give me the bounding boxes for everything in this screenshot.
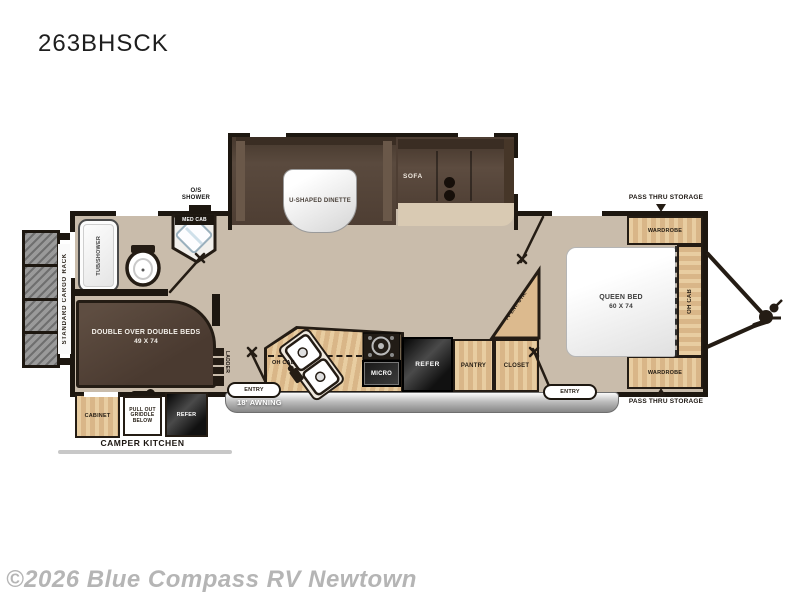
cargo-rack-mount bbox=[58, 358, 72, 365]
bedroom-oh-cab: OH CAB bbox=[677, 245, 703, 357]
ladder-label: LADDER bbox=[224, 351, 230, 373]
outside-shower-box bbox=[189, 205, 211, 212]
pantry-label: PANTRY bbox=[461, 363, 486, 369]
bathroom-wall bbox=[75, 289, 168, 296]
wardrobe-top-label: WARDROBE bbox=[648, 228, 682, 234]
window bbox=[70, 232, 75, 278]
microwave: MICRO bbox=[362, 360, 401, 387]
queen-bed-label: QUEEN BED bbox=[599, 294, 642, 301]
tub-shower-label: TUB/SHOWER bbox=[96, 236, 102, 276]
cargo-rack bbox=[22, 230, 60, 368]
closet: CLOSET bbox=[494, 339, 539, 392]
bed-head-divider bbox=[675, 246, 677, 356]
window bbox=[250, 133, 286, 137]
oh-cab-divider bbox=[268, 355, 362, 357]
window bbox=[514, 158, 518, 194]
sofa-seam bbox=[470, 151, 472, 201]
bunk-label: DOUBLE OVER DOUBLE BEDS bbox=[92, 329, 201, 336]
watermark: ©2026 Blue Compass RV Newtown bbox=[6, 566, 417, 594]
bedroom-oh-cab-label: OH CAB bbox=[687, 289, 693, 314]
bunk-beds: DOUBLE OVER DOUBLE BEDS 49 X 74 bbox=[76, 300, 216, 388]
entry-front-label: ENTRY bbox=[244, 387, 263, 393]
pantry: PANTRY bbox=[453, 339, 494, 392]
refrigerator: REFER bbox=[402, 337, 453, 392]
griddle-label: BELOW bbox=[133, 419, 153, 425]
refrigerator-label: REFER bbox=[415, 361, 440, 368]
window bbox=[552, 211, 602, 216]
entry-door-front: ENTRY bbox=[227, 382, 281, 398]
cargo-rack-cell bbox=[25, 233, 57, 264]
pass-thru-top-label: PASS THRU STORAGE bbox=[624, 194, 708, 201]
tub-shower: TUB/SHOWER bbox=[78, 219, 119, 292]
pass-thru-bottom-marker bbox=[656, 388, 666, 396]
dinette-back bbox=[236, 137, 396, 145]
hitch bbox=[707, 253, 781, 347]
dinette-label: U-SHAPED DINETTE bbox=[289, 198, 351, 204]
wardrobe-top: WARDROBE bbox=[627, 216, 703, 245]
sofa-cupholder bbox=[444, 190, 455, 201]
entry-rear-label: ENTRY bbox=[560, 389, 579, 395]
camper-refrigerator: REFER bbox=[165, 392, 208, 437]
ground-shadow bbox=[58, 450, 232, 454]
pull-out-griddle: PULL OUT GRIDDLE BELOW bbox=[123, 396, 162, 436]
sofa-label: SOFA bbox=[403, 173, 423, 180]
cargo-rack-cell bbox=[25, 334, 57, 365]
window bbox=[458, 133, 494, 137]
sofa-back bbox=[398, 139, 514, 149]
wardrobe-bottom: WARDROBE bbox=[627, 356, 703, 389]
med-cab: MED CAB bbox=[175, 215, 214, 225]
awning-label: 18' AWNING bbox=[237, 398, 282, 407]
bunk-size: 49 X 74 bbox=[134, 338, 158, 345]
dinette-table: U-SHAPED DINETTE bbox=[283, 169, 357, 233]
wardrobe-bottom-label: WARDROBE bbox=[648, 370, 682, 376]
microwave-label: MICRO bbox=[371, 371, 392, 377]
cargo-rack-cell bbox=[25, 301, 57, 332]
window bbox=[116, 211, 158, 216]
queen-bed: QUEEN BED 60 X 74 bbox=[566, 247, 676, 357]
camper-cabinet-label: CABINET bbox=[85, 413, 111, 419]
hitch-jack bbox=[752, 300, 782, 328]
kitchen-oh-cab-label: OH CAB bbox=[272, 360, 295, 366]
camper-refrigerator-label: REFER bbox=[177, 412, 197, 418]
sofa-seam bbox=[436, 151, 438, 201]
cargo-rack-label: STANDARD CARGO RACK bbox=[62, 253, 68, 344]
window bbox=[84, 392, 118, 397]
closet-label: CLOSET bbox=[504, 363, 530, 369]
dinette-arm bbox=[383, 141, 392, 221]
sofa-cupholder bbox=[444, 177, 455, 188]
pass-thru-bottom-label: PASS THRU STORAGE bbox=[624, 398, 708, 405]
entry-door-rear: ENTRY bbox=[543, 384, 597, 400]
cargo-rack-cell bbox=[25, 267, 57, 298]
outside-shower-label: O/S SHOWER bbox=[164, 188, 228, 201]
queen-bed-size: 60 X 74 bbox=[609, 303, 633, 310]
camper-kitchen-label: CAMPER KITCHEN bbox=[70, 438, 215, 448]
sofa-arm bbox=[504, 139, 514, 203]
camper-cabinet: CABINET bbox=[75, 394, 120, 438]
bunk-wall bbox=[212, 294, 220, 326]
sofa-floor bbox=[398, 200, 514, 226]
page-title: 263BHSCK bbox=[38, 30, 169, 58]
dinette-arm bbox=[236, 141, 245, 221]
floorplan-page: 263BHSCK STANDARD CARGO RACK U-SHAPED DI… bbox=[0, 0, 800, 600]
pass-thru-top-marker bbox=[656, 204, 666, 212]
